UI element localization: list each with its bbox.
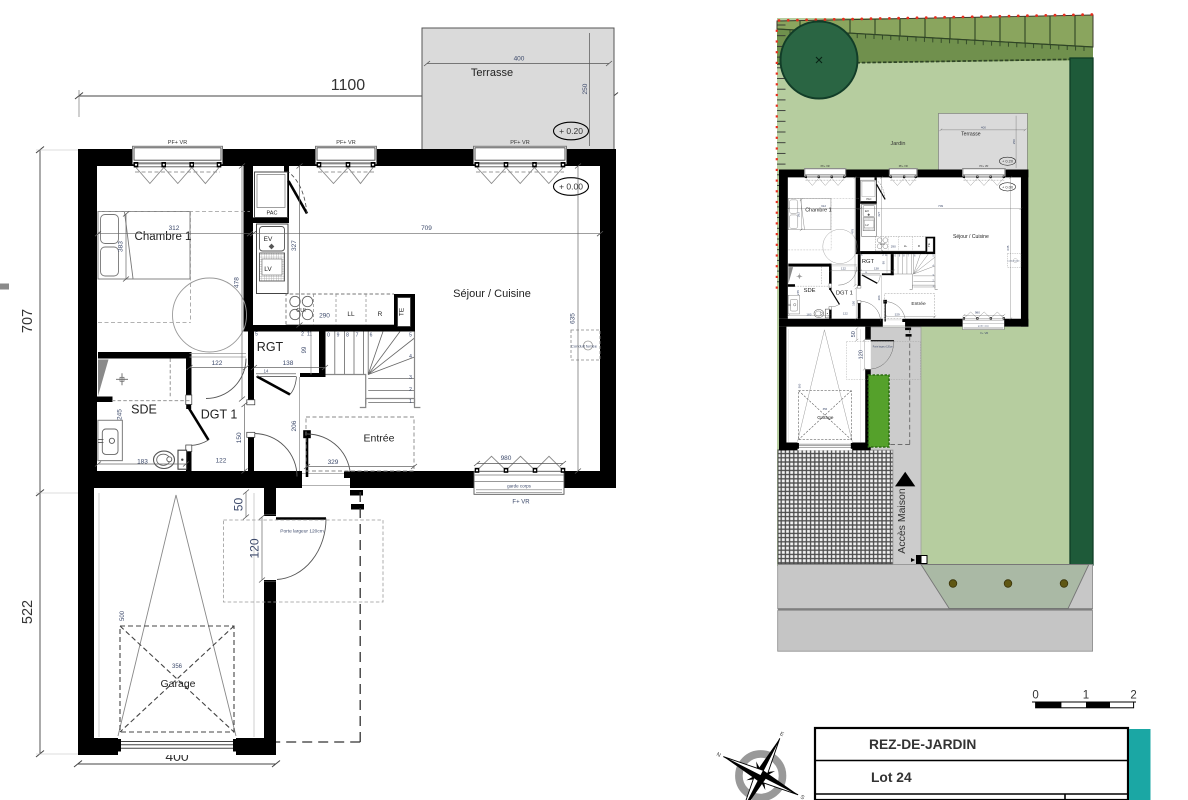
svg-text:0: 0 [1032, 690, 1038, 702]
svg-text:707: 707 [20, 309, 36, 333]
svg-text:522: 522 [20, 600, 36, 624]
svg-text:REZ-DE-JARDIN: REZ-DE-JARDIN [869, 737, 976, 752]
svg-text:1: 1 [1083, 690, 1089, 702]
svg-text:Lot 24: Lot 24 [871, 770, 912, 785]
svg-text:Jardin: Jardin [891, 141, 906, 147]
svg-text:2: 2 [1130, 690, 1136, 702]
svg-text:1100: 1100 [331, 77, 366, 94]
svg-text:Accès Maison: Accès Maison [896, 488, 908, 554]
